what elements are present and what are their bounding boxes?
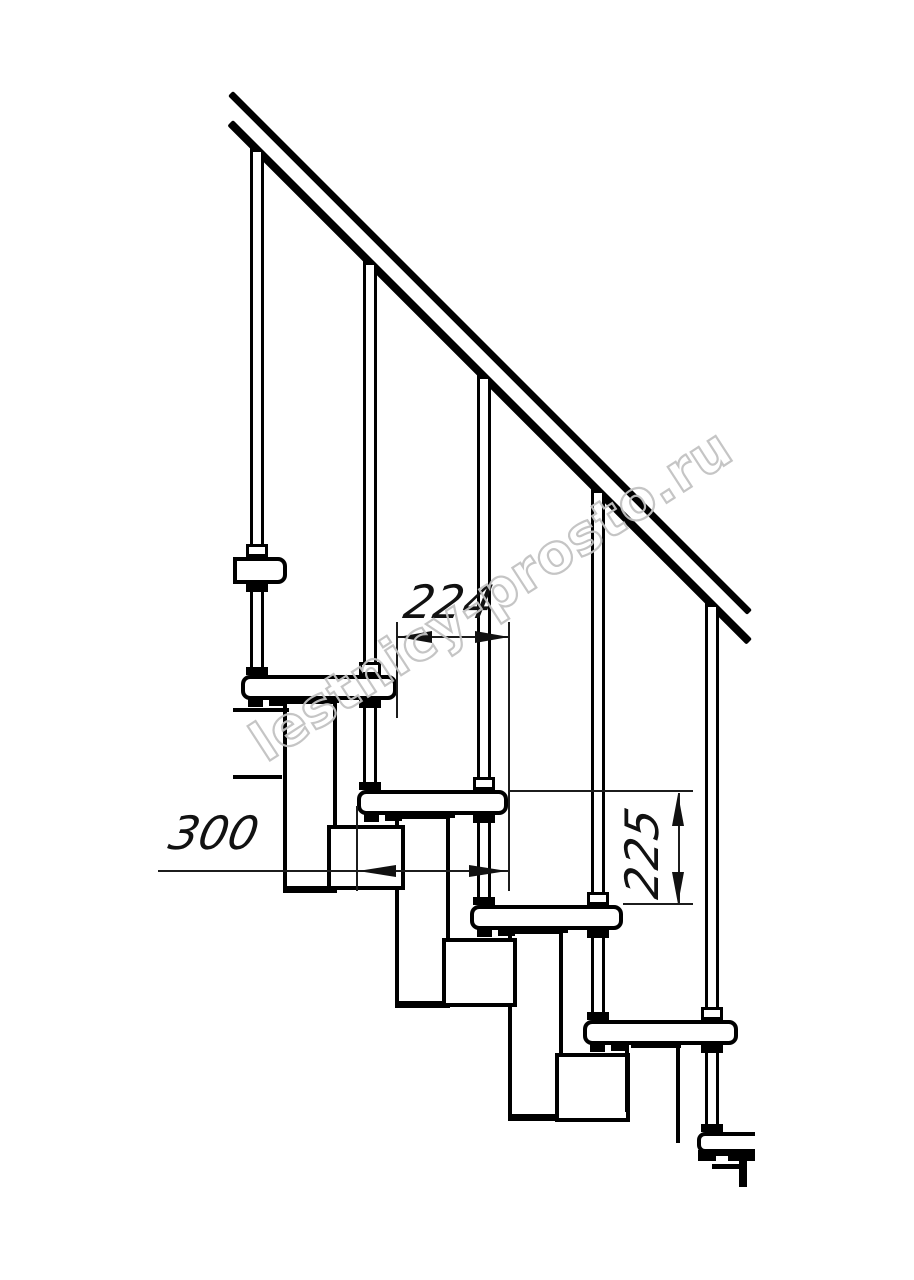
staircase-technical-drawing: 224 300 225 lestnicy-prosto.ru [0,0,914,1280]
bottom-step-line [712,1164,742,1169]
dimension-step-rise-label: 225 [615,801,669,904]
tread-clamp-tab [498,928,515,936]
leg-bottom-collar [359,782,381,790]
dimension-line [508,622,510,891]
dimension-line [623,903,693,905]
baluster [250,152,264,557]
step-module-block [442,938,517,1007]
dimension-line [356,806,358,891]
leg-top-collar [473,815,495,823]
stair-tread [233,557,287,584]
leg-bottom-collar [246,667,268,675]
module-cut-line [676,1045,680,1143]
tread-shadow-strip [518,928,568,933]
tread-clamp-tab [477,928,492,937]
foot-notch [716,1156,728,1162]
landing-edge-line [233,775,282,779]
leg-bottom-collar [701,1124,723,1132]
baluster-base-collar [246,544,268,557]
baluster [363,265,377,675]
baluster-base-collar [587,892,609,905]
leg-top-collar [587,930,609,938]
dimension-line [158,870,508,872]
leg-bottom-collar [587,1012,609,1020]
stair-tread [470,905,623,930]
dimension-line [508,790,693,792]
tread-support-leg [477,815,491,905]
stair-tread [583,1020,738,1045]
leg-bottom-collar [473,897,495,905]
baluster-base-collar [473,777,495,790]
tread-clamp-tab [364,813,379,822]
tread-shadow-strip [405,813,455,818]
tread-support-leg [591,930,605,1020]
leg-top-collar [246,584,268,592]
tread-clamp-tab [590,1043,605,1052]
stair-tread [357,790,508,815]
tread-support-leg [250,584,264,675]
baluster-base-collar [701,1007,723,1020]
module-cut-line [625,1045,629,1112]
tread-clamp-tab [385,813,402,821]
dimension-arrowhead [672,794,684,826]
baluster [705,607,719,1020]
dimension-tread-depth-label: 300 [160,806,267,860]
bottom-cut-line [739,1160,747,1187]
step-module-block [555,1053,630,1122]
step-module-block [327,825,405,890]
tread-support-leg [705,1045,719,1132]
tread-shadow-strip [631,1043,681,1048]
dimension-arrowhead [672,872,684,904]
leg-top-collar [701,1045,723,1053]
